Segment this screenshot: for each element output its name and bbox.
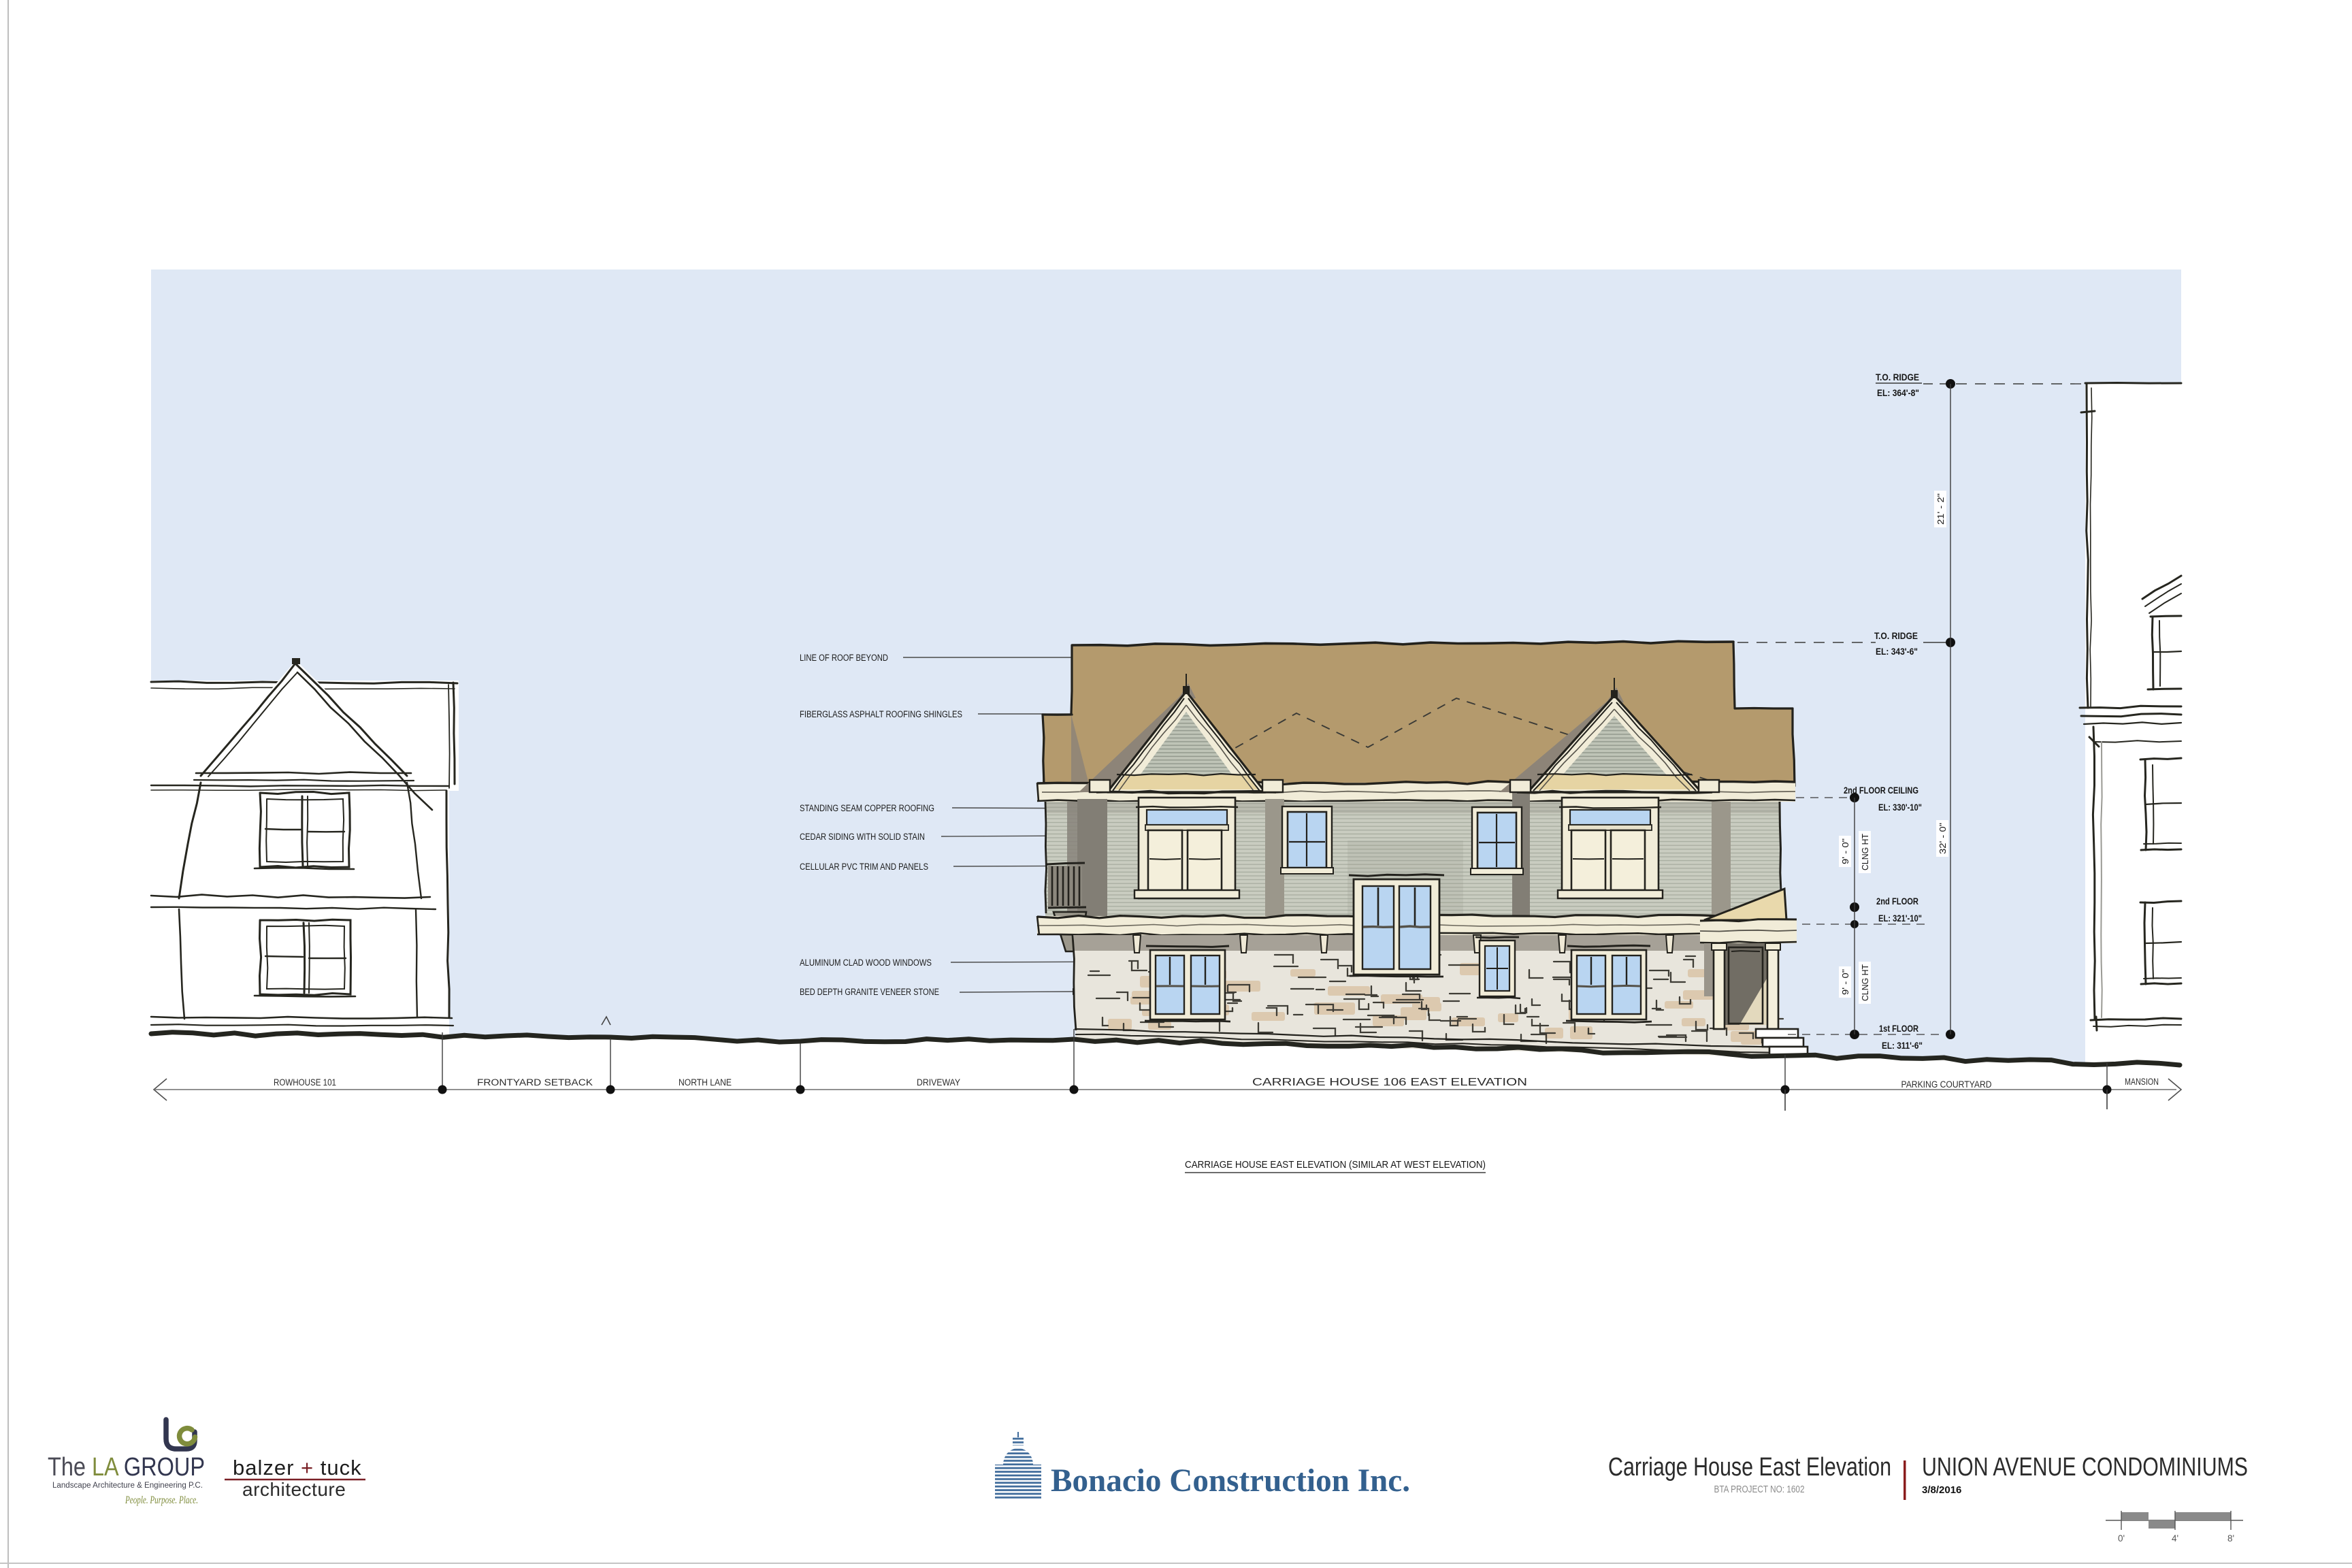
svg-text:STANDING SEAM COPPER ROOFING: STANDING SEAM COPPER ROOFING bbox=[800, 803, 934, 813]
svg-text:BTA PROJECT NO: 1602: BTA PROJECT NO: 1602 bbox=[1714, 1484, 1805, 1495]
svg-text:21' - 2": 21' - 2" bbox=[1936, 493, 1946, 525]
svg-text:EL: 321'-10": EL: 321'-10" bbox=[1878, 913, 1922, 924]
svg-text:EL: 364'-8": EL: 364'-8" bbox=[1877, 388, 1919, 398]
svg-text:ALUMINUM CLAD WOOD WINDOWS: ALUMINUM CLAD WOOD WINDOWS bbox=[800, 958, 932, 968]
svg-text:Carriage House East Elevation: Carriage House East Elevation bbox=[1608, 1453, 1891, 1482]
svg-text:8': 8' bbox=[2227, 1533, 2234, 1543]
svg-text:CELLULAR PVC TRIM AND PANELS: CELLULAR PVC TRIM AND PANELS bbox=[800, 862, 928, 872]
svg-text:Landscape Architecture & Engin: Landscape Architecture & Engineering P.C… bbox=[52, 1482, 203, 1490]
svg-text:2nd FLOOR: 2nd FLOOR bbox=[1876, 896, 1918, 906]
svg-text:9' - 0": 9' - 0" bbox=[1841, 969, 1850, 995]
svg-text:4': 4' bbox=[2172, 1533, 2178, 1543]
svg-text:CLNG HT: CLNG HT bbox=[1861, 964, 1870, 1001]
svg-text:9' - 0": 9' - 0" bbox=[1841, 838, 1850, 864]
svg-text:T.O. RIDGE: T.O. RIDGE bbox=[1876, 372, 1919, 382]
svg-text:CARRIAGE HOUSE 106 EAST ELEVAT: CARRIAGE HOUSE 106 EAST ELEVATION bbox=[1252, 1077, 1527, 1088]
svg-text:UNION AVENUE CONDOMINIUMS: UNION AVENUE CONDOMINIUMS bbox=[1922, 1453, 2248, 1482]
svg-text:BED DEPTH GRANITE VENEER STONE: BED DEPTH GRANITE VENEER STONE bbox=[800, 987, 939, 997]
svg-text:MANSION: MANSION bbox=[2125, 1077, 2159, 1087]
svg-text:The LA GROUP: The LA GROUP bbox=[48, 1453, 205, 1482]
svg-text:CARRIAGE HOUSE EAST ELEVATION: CARRIAGE HOUSE EAST ELEVATION (SIMILAR A… bbox=[1185, 1159, 1486, 1171]
svg-text:EL: 343'-6": EL: 343'-6" bbox=[1876, 647, 1918, 657]
svg-text:ROWHOUSE 101: ROWHOUSE 101 bbox=[274, 1077, 336, 1088]
svg-text:LINE OF ROOF BEYOND: LINE OF ROOF BEYOND bbox=[800, 653, 888, 663]
svg-text:CLNG HT: CLNG HT bbox=[1861, 834, 1870, 870]
svg-text:CEDAR SIDING WITH SOLID STAIN: CEDAR SIDING WITH SOLID STAIN bbox=[800, 832, 925, 842]
svg-text:FRONTYARD SETBACK: FRONTYARD SETBACK bbox=[477, 1077, 593, 1088]
svg-text:People. Purpose. Place.: People. Purpose. Place. bbox=[125, 1494, 198, 1506]
svg-text:32' - 0": 32' - 0" bbox=[1938, 823, 1948, 854]
svg-text:FIBERGLASS ASPHALT ROOFING SHI: FIBERGLASS ASPHALT ROOFING SHINGLES bbox=[800, 709, 962, 719]
svg-text:NORTH LANE: NORTH LANE bbox=[679, 1077, 732, 1088]
svg-text:3/8/2016: 3/8/2016 bbox=[1922, 1484, 1961, 1496]
svg-text:EL: 330'-10": EL: 330'-10" bbox=[1878, 802, 1922, 813]
svg-text:0': 0' bbox=[2118, 1533, 2125, 1543]
svg-text:balzer + tuck: balzer + tuck bbox=[233, 1456, 362, 1480]
svg-text:architecture: architecture bbox=[242, 1479, 346, 1500]
svg-text:EL: 311'-6": EL: 311'-6" bbox=[1882, 1041, 1923, 1051]
svg-text:PARKING COURTYARD: PARKING COURTYARD bbox=[1901, 1079, 1992, 1090]
svg-text:Bonacio Construction Inc.: Bonacio Construction Inc. bbox=[1051, 1463, 1410, 1499]
svg-text:T.O. RIDGE: T.O. RIDGE bbox=[1874, 631, 1918, 641]
svg-text:DRIVEWAY: DRIVEWAY bbox=[917, 1077, 960, 1088]
svg-text:1st FLOOR: 1st FLOOR bbox=[1879, 1024, 1918, 1034]
